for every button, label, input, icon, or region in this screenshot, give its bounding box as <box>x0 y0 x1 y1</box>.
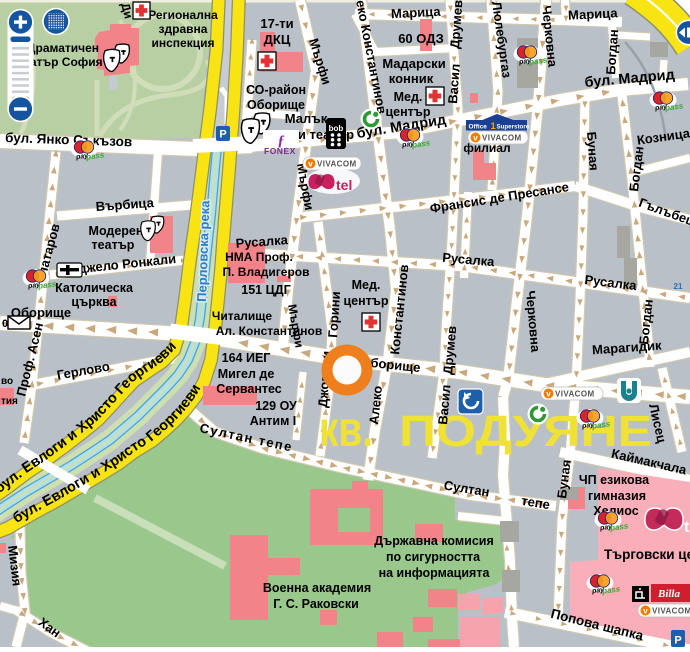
svg-text:инспекция: инспекция <box>152 36 215 50</box>
svg-text:на информацията: на информацията <box>379 566 491 580</box>
svg-text:P: P <box>219 129 226 141</box>
svg-text:Billa: Billa <box>657 588 681 600</box>
svg-text:VIVACOM: VIVACOM <box>555 390 595 399</box>
svg-text:v: v <box>643 607 648 616</box>
svg-text:129 ОУ: 129 ОУ <box>255 399 297 413</box>
svg-text:FONEX: FONEX <box>264 146 296 156</box>
svg-text:tel: tel <box>336 177 352 193</box>
svg-text:здравна: здравна <box>159 22 208 36</box>
svg-text:Драматичен: Драматичен <box>27 41 99 55</box>
svg-text:60 ОДЗ: 60 ОДЗ <box>398 31 444 46</box>
svg-text:тия: тия <box>1 396 18 407</box>
svg-text:Сервантес: Сервантес <box>216 382 282 396</box>
svg-text:Богдан: Богдан <box>603 29 621 75</box>
svg-text:по сигурността: по сигурността <box>386 550 481 564</box>
svg-text:151 ЦДГ: 151 ЦДГ <box>241 283 290 297</box>
svg-text:P: P <box>674 635 681 647</box>
svg-text:Марица: Марица <box>568 5 619 23</box>
svg-text:СО-район: СО-район <box>246 83 306 97</box>
svg-text:Васил: Васил <box>445 63 463 104</box>
svg-text:Регионална: Регионална <box>148 8 218 22</box>
svg-text:во: во <box>1 376 13 387</box>
svg-text:Мед.: Мед. <box>352 278 381 292</box>
svg-text:НМА Проф.: НМА Проф. <box>225 250 293 264</box>
svg-text:Марица: Марица <box>391 4 442 22</box>
svg-text:П. Владигеров: П. Владигеров <box>223 265 310 279</box>
svg-text:Мед.: Мед. <box>394 90 423 104</box>
svg-text:ЧП езикова: ЧП езикова <box>579 473 650 487</box>
svg-text:VIVACOM: VIVACOM <box>317 160 357 169</box>
svg-text:v: v <box>546 390 551 399</box>
svg-text:164 ИЕГ: 164 ИЕГ <box>222 351 271 365</box>
svg-text:Малък: Малък <box>285 111 328 126</box>
svg-text:Търговски цент: Търговски цент <box>604 547 690 562</box>
svg-text:bob: bob <box>329 124 344 133</box>
svg-text:Superstore: Superstore <box>497 124 530 131</box>
svg-text:Модерен: Модерен <box>89 224 144 238</box>
svg-text:t: t <box>684 519 690 536</box>
svg-text:Буная: Буная <box>584 131 602 171</box>
svg-text:VIVACOM: VIVACOM <box>482 134 522 143</box>
svg-text:конник: конник <box>389 71 434 86</box>
svg-text:ДКЦ: ДКЦ <box>264 32 291 47</box>
svg-text:Г. С. Раковски: Г. С. Раковски <box>273 597 359 611</box>
svg-text:21: 21 <box>674 282 683 291</box>
svg-text:Държавна комисия: Държавна комисия <box>374 534 494 548</box>
svg-text:Office: Office <box>469 124 488 131</box>
svg-text:център: център <box>343 294 388 308</box>
svg-text:Читалище: Читалище <box>212 309 272 323</box>
svg-text:VIVACOM: VIVACOM <box>652 607 690 616</box>
svg-text:Военна академия: Военна академия <box>263 581 371 595</box>
svg-text:гимназия: гимназия <box>588 489 646 503</box>
svg-text:17-ти: 17-ти <box>260 16 293 31</box>
svg-text:Ал. Константинов: Ал. Константинов <box>216 324 323 338</box>
svg-text:Оборище: Оборище <box>247 98 305 112</box>
svg-text:театър: театър <box>92 238 135 252</box>
svg-text:Мадарски: Мадарски <box>382 56 445 71</box>
svg-text:v: v <box>473 134 478 143</box>
svg-text:Антим I: Антим I <box>250 414 297 428</box>
svg-text:v: v <box>308 160 313 169</box>
svg-text:Католическа: Католическа <box>55 281 134 295</box>
svg-text:Мигел де: Мигел де <box>218 367 275 381</box>
svg-text:кв.: кв. <box>319 401 373 457</box>
svg-text:църква: църква <box>71 295 117 309</box>
